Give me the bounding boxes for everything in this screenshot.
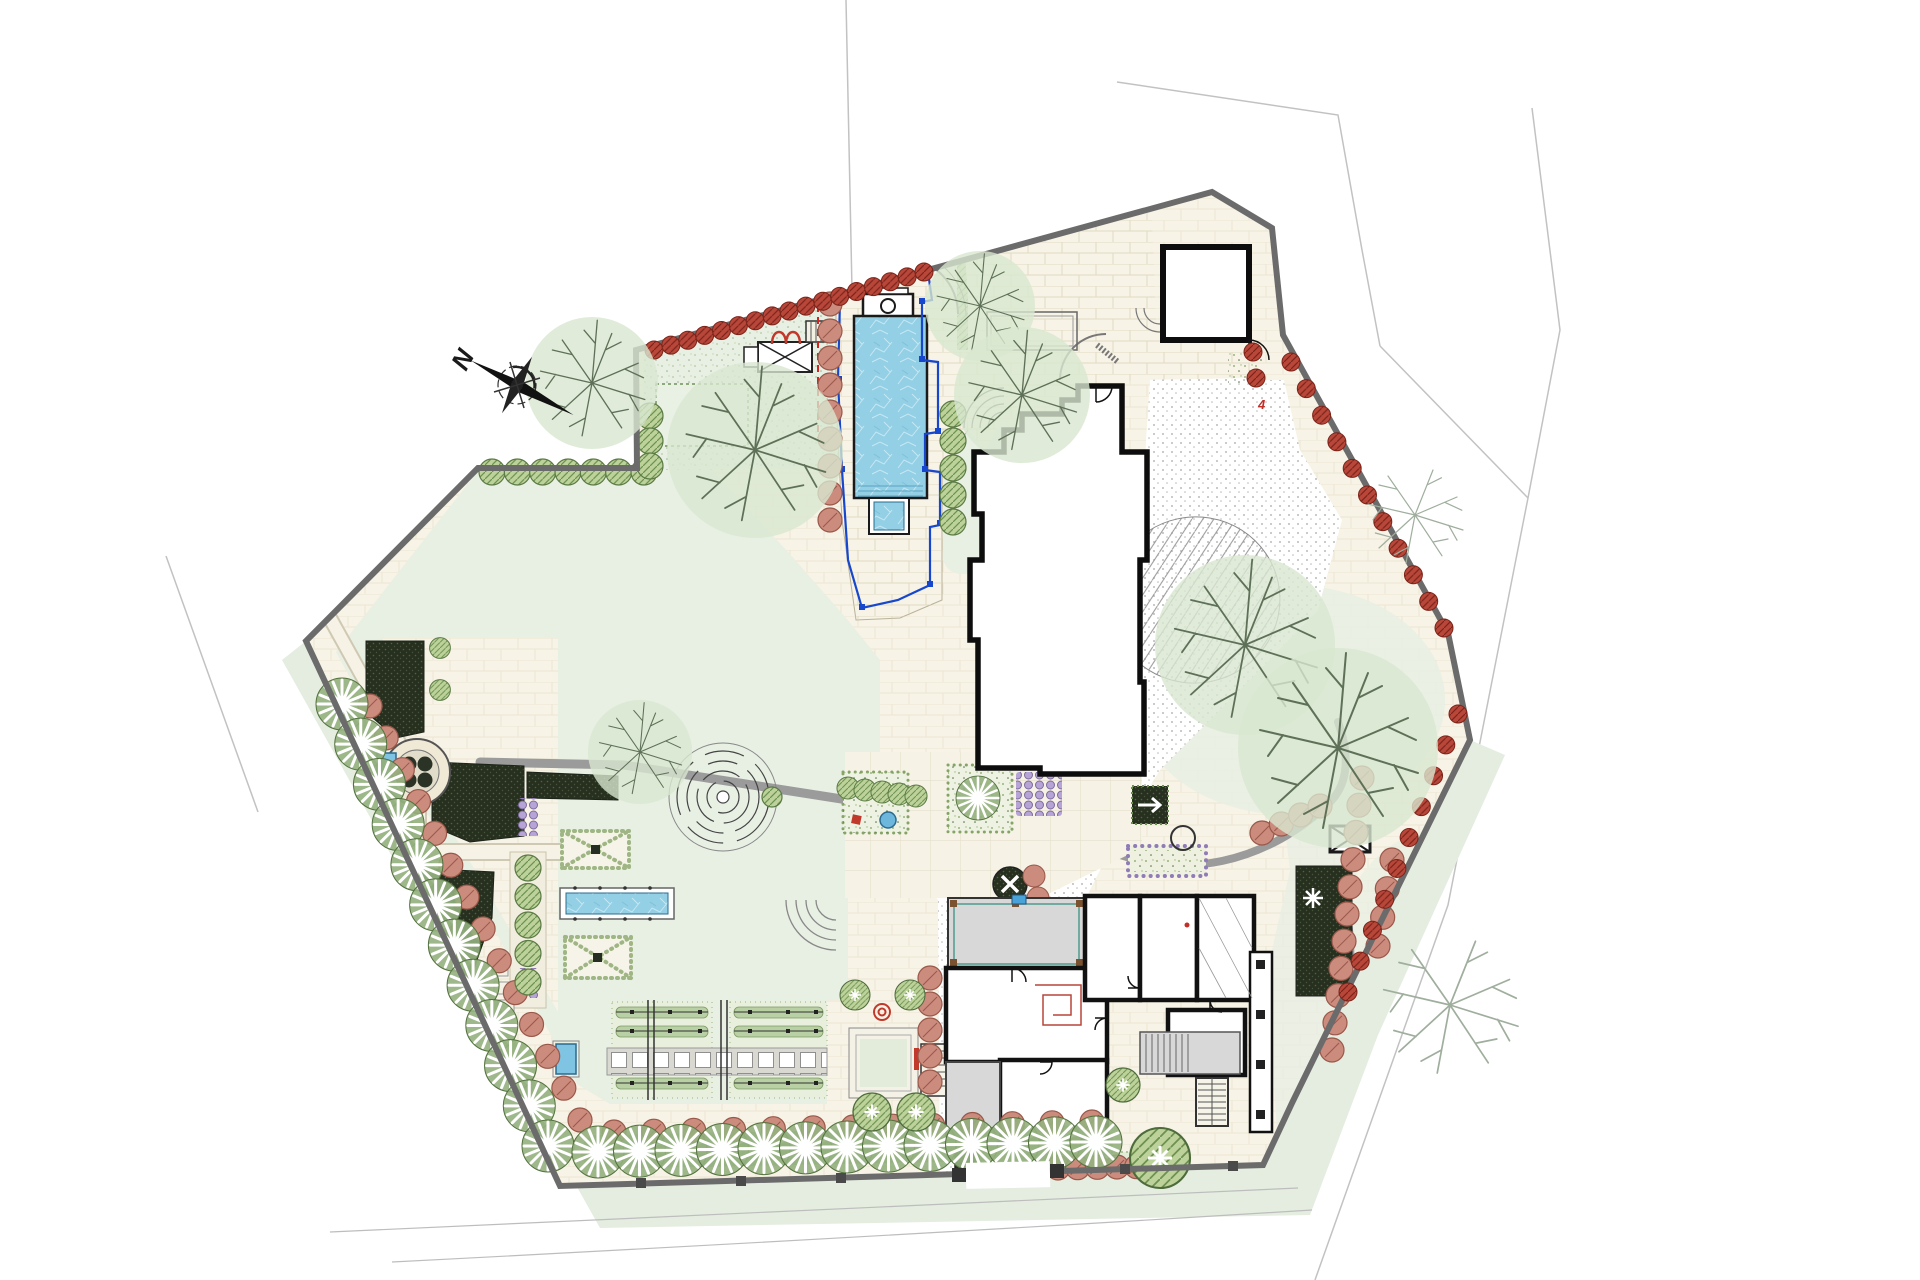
redhedge-plant xyxy=(1247,369,1265,387)
bubble-plant xyxy=(504,459,530,485)
redhedge-plant xyxy=(696,326,714,344)
redhedge-plant xyxy=(1282,353,1300,371)
swimming-pool xyxy=(854,285,927,534)
bubble-plant xyxy=(530,459,556,485)
redhedge-plant xyxy=(746,312,764,330)
pinktree-plant xyxy=(1341,848,1365,872)
court-bed-purple xyxy=(1016,772,1062,816)
pinktree-plant xyxy=(918,1070,942,1094)
redhedge-plant xyxy=(1297,380,1315,398)
bubble-plant xyxy=(580,459,606,485)
pinktree-plant xyxy=(1338,875,1362,899)
bubble-plant xyxy=(940,509,966,535)
reflecting-pool xyxy=(560,886,674,921)
redhedge-plant xyxy=(797,297,815,315)
kids-pool xyxy=(869,498,909,534)
bubble-plant xyxy=(430,638,451,659)
pinktree-plant xyxy=(552,1076,576,1100)
residence-terrace-se xyxy=(1140,1032,1240,1074)
bubble-plant xyxy=(430,680,451,701)
redhedge-plant xyxy=(679,331,697,349)
roundtree-plant xyxy=(853,1093,891,1131)
pinktree-plant xyxy=(818,346,842,370)
residence-porch xyxy=(948,895,1085,970)
redhedge-plant xyxy=(1339,983,1357,1001)
bubble-plant xyxy=(905,785,927,807)
redhedge-plant xyxy=(1359,486,1377,504)
pinktree-plant xyxy=(536,1044,560,1068)
parterre-bed-north xyxy=(562,831,629,868)
bubble-plant xyxy=(637,453,663,479)
redhedge-plant xyxy=(898,268,916,286)
roundtree-plant xyxy=(897,1093,935,1131)
bubble-plant xyxy=(555,459,581,485)
bubble-plant xyxy=(515,912,541,938)
roundtree-plant xyxy=(1130,1128,1190,1188)
bubble-plant xyxy=(515,969,541,995)
redhedge-plant xyxy=(864,278,882,296)
redhedge-plant xyxy=(1244,343,1262,361)
planter-grid-band xyxy=(607,1048,827,1075)
tree-plant xyxy=(588,700,692,804)
redhedge-plant xyxy=(1435,619,1453,637)
pinktree-plant xyxy=(818,508,842,532)
redhedge-plant xyxy=(915,263,933,281)
entry-gate-opening xyxy=(966,1161,1051,1189)
redhedge-plant xyxy=(662,336,680,354)
redhedge-plant xyxy=(831,287,849,305)
bubble-plant xyxy=(515,884,541,910)
tree-plant xyxy=(667,362,843,538)
redhedge-plant xyxy=(848,283,866,301)
palm-plant xyxy=(956,776,1000,820)
redhedge-plant xyxy=(1388,859,1406,877)
pinktree-plant xyxy=(520,1012,544,1036)
tree-plant xyxy=(526,317,658,449)
redhedge-plant xyxy=(1376,890,1394,908)
bubble-plant xyxy=(515,941,541,967)
redhedge-plant xyxy=(881,273,899,291)
bubble-plant xyxy=(940,455,966,481)
bubble-plant xyxy=(606,459,632,485)
bubble-plant xyxy=(479,459,505,485)
pinktree-plant xyxy=(1332,929,1356,953)
redhedge-plant xyxy=(1389,539,1407,557)
bubble-plant xyxy=(515,855,541,881)
bubble-plant xyxy=(940,482,966,508)
redhedge-plant xyxy=(1437,736,1455,754)
landscape-site-plan: N 4 xyxy=(0,0,1920,1280)
redhedge-plant xyxy=(763,307,781,325)
redhedge-plant xyxy=(1328,433,1346,451)
redhedge-plant xyxy=(1449,705,1467,723)
parterre-bed-south xyxy=(565,937,631,978)
pinktree-plant xyxy=(818,319,842,343)
roundtree-plant xyxy=(895,980,925,1010)
residence-stair xyxy=(1196,1078,1228,1126)
pinktree-plant xyxy=(1335,902,1359,926)
redhedge-plant xyxy=(1313,406,1331,424)
pinktree-plant xyxy=(918,1018,942,1042)
palm-plant xyxy=(1070,1116,1122,1168)
redhedge-plant xyxy=(713,322,731,340)
bubble-plant xyxy=(940,428,966,454)
redhedge-plant xyxy=(1363,921,1381,939)
redhedge-plant xyxy=(729,317,747,335)
tree-plant xyxy=(954,327,1090,463)
redhedge-plant xyxy=(1343,459,1361,477)
pool-water xyxy=(854,316,927,498)
pinktree-plant xyxy=(1329,956,1353,980)
redhedge-plant xyxy=(1420,592,1438,610)
arrow-shrub-square xyxy=(1132,786,1168,824)
redhedge-plant xyxy=(780,302,798,320)
pinktree-plant xyxy=(918,1044,942,1068)
roundtree-plant xyxy=(1106,1068,1140,1102)
bubble-plant xyxy=(637,428,663,454)
tree-plant xyxy=(1238,648,1438,848)
plant-code-annotation: 4 xyxy=(1257,397,1266,412)
site-plan-drawing: N 4 xyxy=(0,0,1920,1280)
redhedge-plant xyxy=(814,292,832,310)
room-label-mark xyxy=(1185,923,1190,928)
redhedge-plant xyxy=(1351,952,1369,970)
redhedge-plant xyxy=(1400,829,1418,847)
roundtree-plant xyxy=(840,980,870,1010)
redhedge-plant xyxy=(1404,566,1422,584)
